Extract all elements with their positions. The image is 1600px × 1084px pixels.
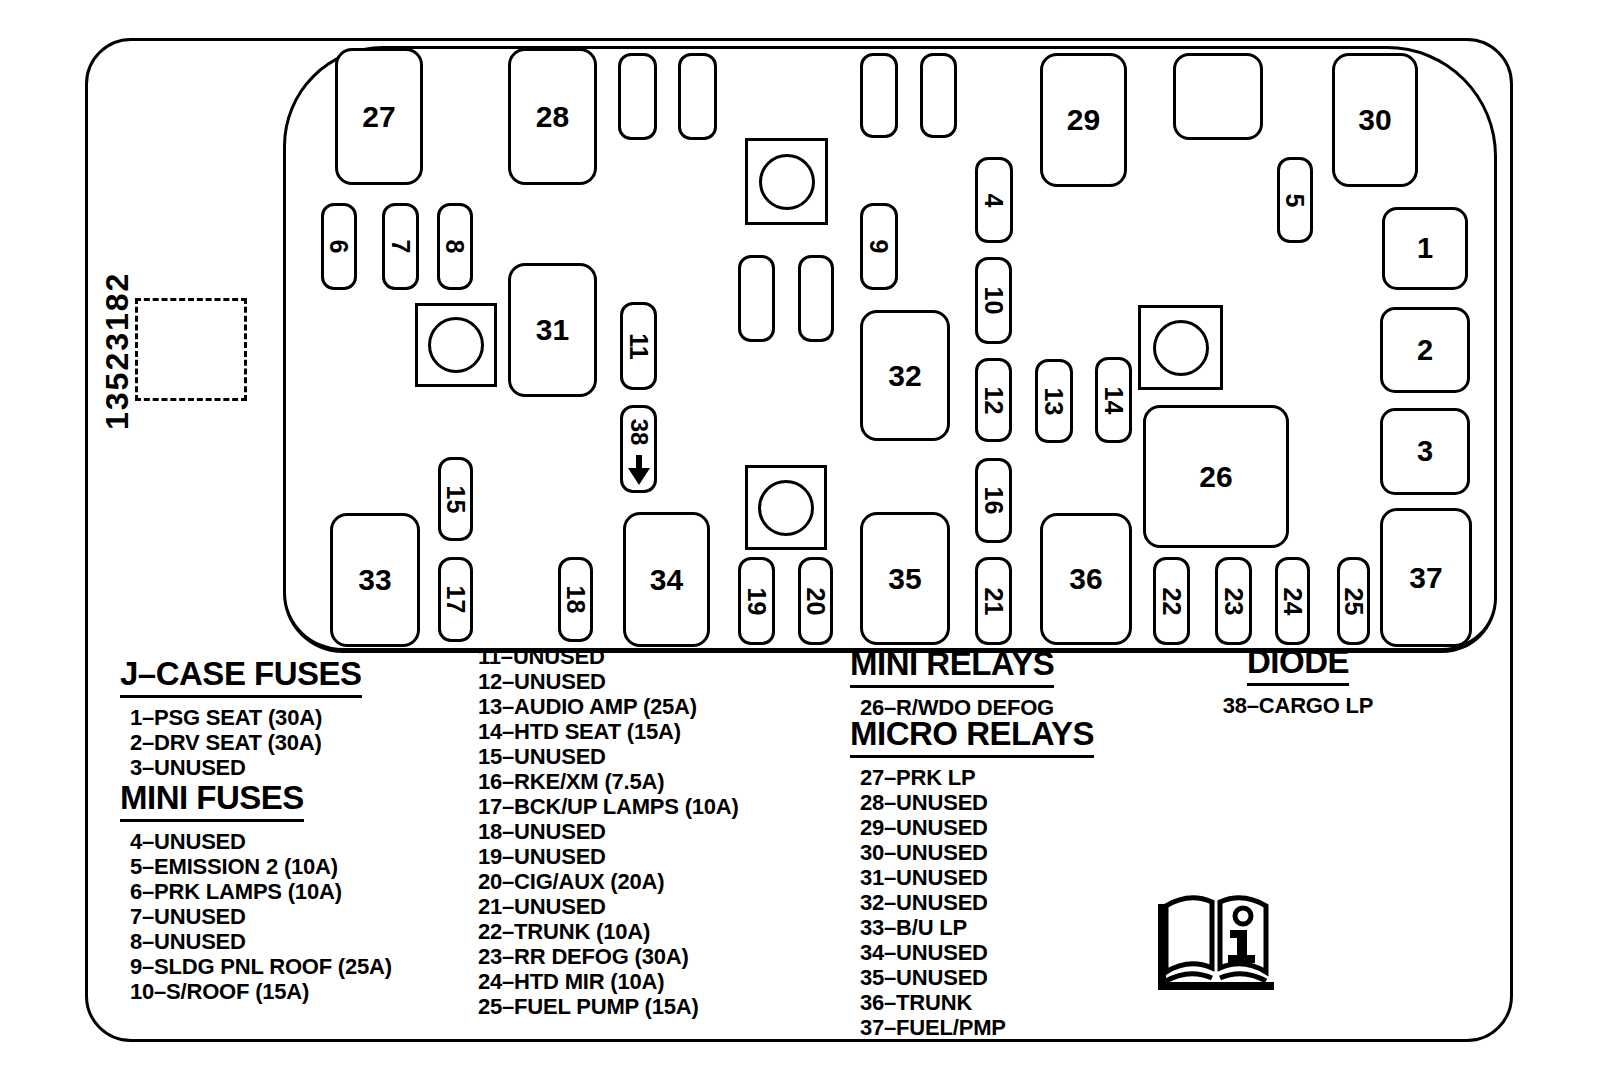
part-number: 13523182 — [99, 272, 136, 430]
legend-section-fuses-11-25: 11–UNUSED12–UNUSED13–AUDIO AMP (25A)14–H… — [478, 644, 739, 1019]
legend-item: 38–CARGO LP — [1208, 693, 1388, 718]
legend-heading-micro-relays: MICRO RELAYS — [850, 716, 1094, 758]
legend-item: 34–UNUSED — [860, 940, 1094, 965]
legend-item: 7–UNUSED — [130, 904, 392, 929]
relay-35: 35 — [860, 512, 950, 645]
fuse-box-diagram-page: { "part_number": "13523182", "colors": {… — [0, 0, 1600, 1084]
slot-label: 21 — [979, 587, 1008, 615]
down-arrow-head — [628, 468, 650, 485]
slot-label: 18 — [561, 586, 590, 614]
slot-label: 2 — [1417, 334, 1433, 367]
fuse-2: 2 — [1380, 307, 1470, 393]
fuse-6: 6 — [321, 203, 357, 290]
slot-label: 35 — [888, 562, 921, 596]
fuse-18: 18 — [558, 557, 593, 642]
fuse-30: 30 — [1332, 53, 1418, 187]
legend-item: 10–S/ROOF (15A) — [130, 979, 392, 1004]
fuse-11: 11 — [620, 302, 657, 390]
legend-items-diode: 38–CARGO LP — [1208, 693, 1388, 718]
legend-section-mini-fuses: MINI FUSES 4–UNUSED5–EMISSION 2 (10A)6–P… — [120, 780, 392, 1004]
book-left-page — [1166, 898, 1212, 972]
unused-slot-d — [920, 53, 957, 138]
legend-item: 2–DRV SEAT (30A) — [130, 730, 362, 755]
unused-slot-e — [738, 255, 775, 342]
unused-slot-c — [860, 53, 898, 138]
fuse-29: 29 — [1040, 53, 1127, 187]
book-bottom-pages — [1166, 974, 1266, 981]
fuse-20: 20 — [798, 557, 833, 645]
slot-label: 6 — [325, 240, 354, 254]
fuse-9: 9 — [860, 203, 898, 290]
fuse-28: 28 — [508, 48, 597, 185]
slot-label: 32 — [888, 359, 921, 393]
relay-symbol-3 — [1138, 305, 1223, 390]
down-arrow-icon — [636, 455, 642, 468]
legend-item: 16–RKE/XM (7.5A) — [478, 769, 739, 794]
legend-item: 22–TRUNK (10A) — [478, 919, 739, 944]
legend-item: 27–PRK LP — [860, 765, 1094, 790]
legend-heading-mini-fuses: MINI FUSES — [120, 780, 304, 822]
legend-item: 30–UNUSED — [860, 840, 1094, 865]
fuse-25: 25 — [1337, 557, 1370, 645]
slot-label: 4 — [980, 193, 1009, 207]
legend-items-micro-relays: 27–PRK LP28–UNUSED29–UNUSED30–UNUSED31–U… — [860, 765, 1094, 1040]
legend-section-jcase-fuses: J–CASE FUSES 1–PSG SEAT (30A)2–DRV SEAT … — [120, 656, 362, 780]
relay-circle — [1153, 320, 1209, 376]
slot-label: 19 — [742, 587, 771, 615]
legend-item: 37–FUEL/PMP — [860, 1015, 1094, 1040]
legend-item: 28–UNUSED — [860, 790, 1094, 815]
fuse-5: 5 — [1277, 157, 1313, 243]
legend-items-jcase-fuses: 1–PSG SEAT (30A)2–DRV SEAT (30A)3–UNUSED — [130, 705, 362, 780]
legend-item: 33–B/U LP — [860, 915, 1094, 940]
slot-label: 9 — [865, 240, 894, 254]
relay-circle — [759, 154, 815, 210]
unlabeled-square-slot — [1173, 53, 1263, 140]
legend-heading-jcase-fuses: J–CASE FUSES — [120, 656, 362, 698]
legend-item: 25–FUEL PUMP (15A) — [478, 994, 739, 1019]
legend-item: 21–UNUSED — [478, 894, 739, 919]
slot-label: 23 — [1219, 587, 1248, 615]
unused-slot-a — [618, 53, 657, 140]
legend-item: 20–CIG/AUX (20A) — [478, 869, 739, 894]
legend-item: 32–UNUSED — [860, 890, 1094, 915]
legend-item: 5–EMISSION 2 (10A) — [130, 854, 392, 879]
fuse-3: 3 — [1380, 408, 1470, 495]
fuse-27: 27 — [335, 48, 423, 185]
legend-item: 11–UNUSED — [478, 644, 739, 669]
legend-item: 31–UNUSED — [860, 865, 1094, 890]
fuse-24: 24 — [1275, 557, 1310, 645]
legend-item: 14–HTD SEAT (15A) — [478, 719, 739, 744]
unused-slot-b — [678, 53, 717, 140]
fuse-14: 14 — [1095, 357, 1132, 443]
relay-36: 36 — [1040, 513, 1132, 645]
legend-item: 36–TRUNK — [860, 990, 1094, 1015]
legend-items-mini-fuses: 4–UNUSED5–EMISSION 2 (10A)6–PRK LAMPS (1… — [130, 829, 392, 1004]
relay-symbol-4 — [745, 465, 827, 550]
fuse-21: 21 — [975, 557, 1012, 645]
fuse-19: 19 — [738, 557, 775, 645]
slot-label: 33 — [358, 563, 391, 597]
fuse-4: 4 — [975, 157, 1013, 243]
legend-item: 29–UNUSED — [860, 815, 1094, 840]
relay-33: 33 — [330, 513, 420, 647]
legend-item: 9–SLDG PNL ROOF (25A) — [130, 954, 392, 979]
fuse-7: 7 — [382, 203, 419, 290]
fuse-12: 12 — [975, 358, 1012, 442]
slot-label: 22 — [1157, 587, 1186, 615]
legend-item: 15–UNUSED — [478, 744, 739, 769]
legend-heading-diode: DIODE — [1247, 644, 1349, 686]
slot-label: 31 — [536, 313, 569, 347]
slot-label: 15 — [441, 485, 470, 513]
fuse-10: 10 — [975, 257, 1012, 344]
legend-item: 18–UNUSED — [478, 819, 739, 844]
relay-symbol-1 — [745, 138, 828, 225]
fuse-31: 31 — [508, 263, 597, 397]
dashed-connector-box — [135, 298, 247, 401]
legend-item: 1–PSG SEAT (30A) — [130, 705, 362, 730]
fuse-23: 23 — [1215, 557, 1252, 645]
legend-item: 6–PRK LAMPS (10A) — [130, 879, 392, 904]
relay-34: 34 — [623, 512, 710, 647]
legend-item: 8–UNUSED — [130, 929, 392, 954]
slot-label: 7 — [386, 240, 415, 254]
slot-label: 17 — [441, 586, 470, 614]
legend-section-mini-relays: MINI RELAYS 26–R/WDO DEFOG — [850, 646, 1054, 720]
diode-38: 38 — [620, 405, 657, 493]
fuse-15: 15 — [438, 457, 473, 541]
legend-item: 19–UNUSED — [478, 844, 739, 869]
slot-label: 37 — [1409, 561, 1442, 595]
fuse-8: 8 — [437, 203, 473, 290]
legend-item: 35–UNUSED — [860, 965, 1094, 990]
legend-item: 24–HTD MIR (10A) — [478, 969, 739, 994]
relay-circle — [428, 317, 484, 373]
owner-manual-book-icon — [1152, 888, 1280, 995]
slot-label: 24 — [1278, 587, 1307, 615]
relay-symbol-2 — [415, 303, 497, 387]
slot-label: 38 — [625, 417, 653, 448]
slot-label: 13 — [1040, 387, 1069, 415]
relay-37: 37 — [1380, 508, 1472, 647]
fuse-32: 32 — [860, 310, 950, 441]
info-i-dot — [1235, 908, 1251, 924]
slot-label: 30 — [1358, 103, 1391, 137]
legend-section-micro-relays: MICRO RELAYS 27–PRK LP28–UNUSED29–UNUSED… — [850, 716, 1094, 1040]
fuse-1: 1 — [1382, 207, 1468, 290]
slot-label: 27 — [362, 100, 395, 134]
slot-label: 26 — [1199, 460, 1232, 494]
unused-slot-f — [798, 255, 834, 342]
slot-label: 20 — [801, 587, 830, 615]
legend-items-fuses-11-25: 11–UNUSED12–UNUSED13–AUDIO AMP (25A)14–H… — [478, 644, 739, 1019]
slot-label: 34 — [650, 563, 683, 597]
fuse-17: 17 — [438, 557, 473, 642]
legend-item: 13–AUDIO AMP (25A) — [478, 694, 739, 719]
slot-label: 28 — [536, 100, 569, 134]
slot-label: 3 — [1417, 435, 1433, 468]
legend-item: 17–BCK/UP LAMPS (10A) — [478, 794, 739, 819]
legend-item: 3–UNUSED — [130, 755, 362, 780]
fuse-22: 22 — [1153, 557, 1190, 645]
slot-label: 8 — [441, 240, 470, 254]
legend-heading-mini-relays: MINI RELAYS — [850, 646, 1054, 688]
legend-item: 12–UNUSED — [478, 669, 739, 694]
legend-item: 4–UNUSED — [130, 829, 392, 854]
slot-label: 14 — [1099, 386, 1128, 414]
legend-item: 23–RR DEFOG (30A) — [478, 944, 739, 969]
fuse-16: 16 — [975, 458, 1012, 543]
fuse-13: 13 — [1035, 359, 1073, 443]
slot-label: 11 — [624, 333, 653, 359]
relay-26: 26 — [1143, 405, 1289, 548]
slot-label: 25 — [1339, 587, 1368, 615]
relay-circle — [758, 480, 814, 536]
legend-section-diode: DIODE 38–CARGO LP — [1208, 644, 1388, 718]
slot-label: 12 — [979, 386, 1008, 414]
slot-label: 5 — [1281, 193, 1310, 207]
slot-label: 36 — [1069, 562, 1102, 596]
slot-label: 1 — [1417, 232, 1433, 265]
slot-label: 10 — [979, 287, 1008, 315]
slot-label: 16 — [979, 487, 1008, 515]
slot-label: 29 — [1067, 103, 1100, 137]
